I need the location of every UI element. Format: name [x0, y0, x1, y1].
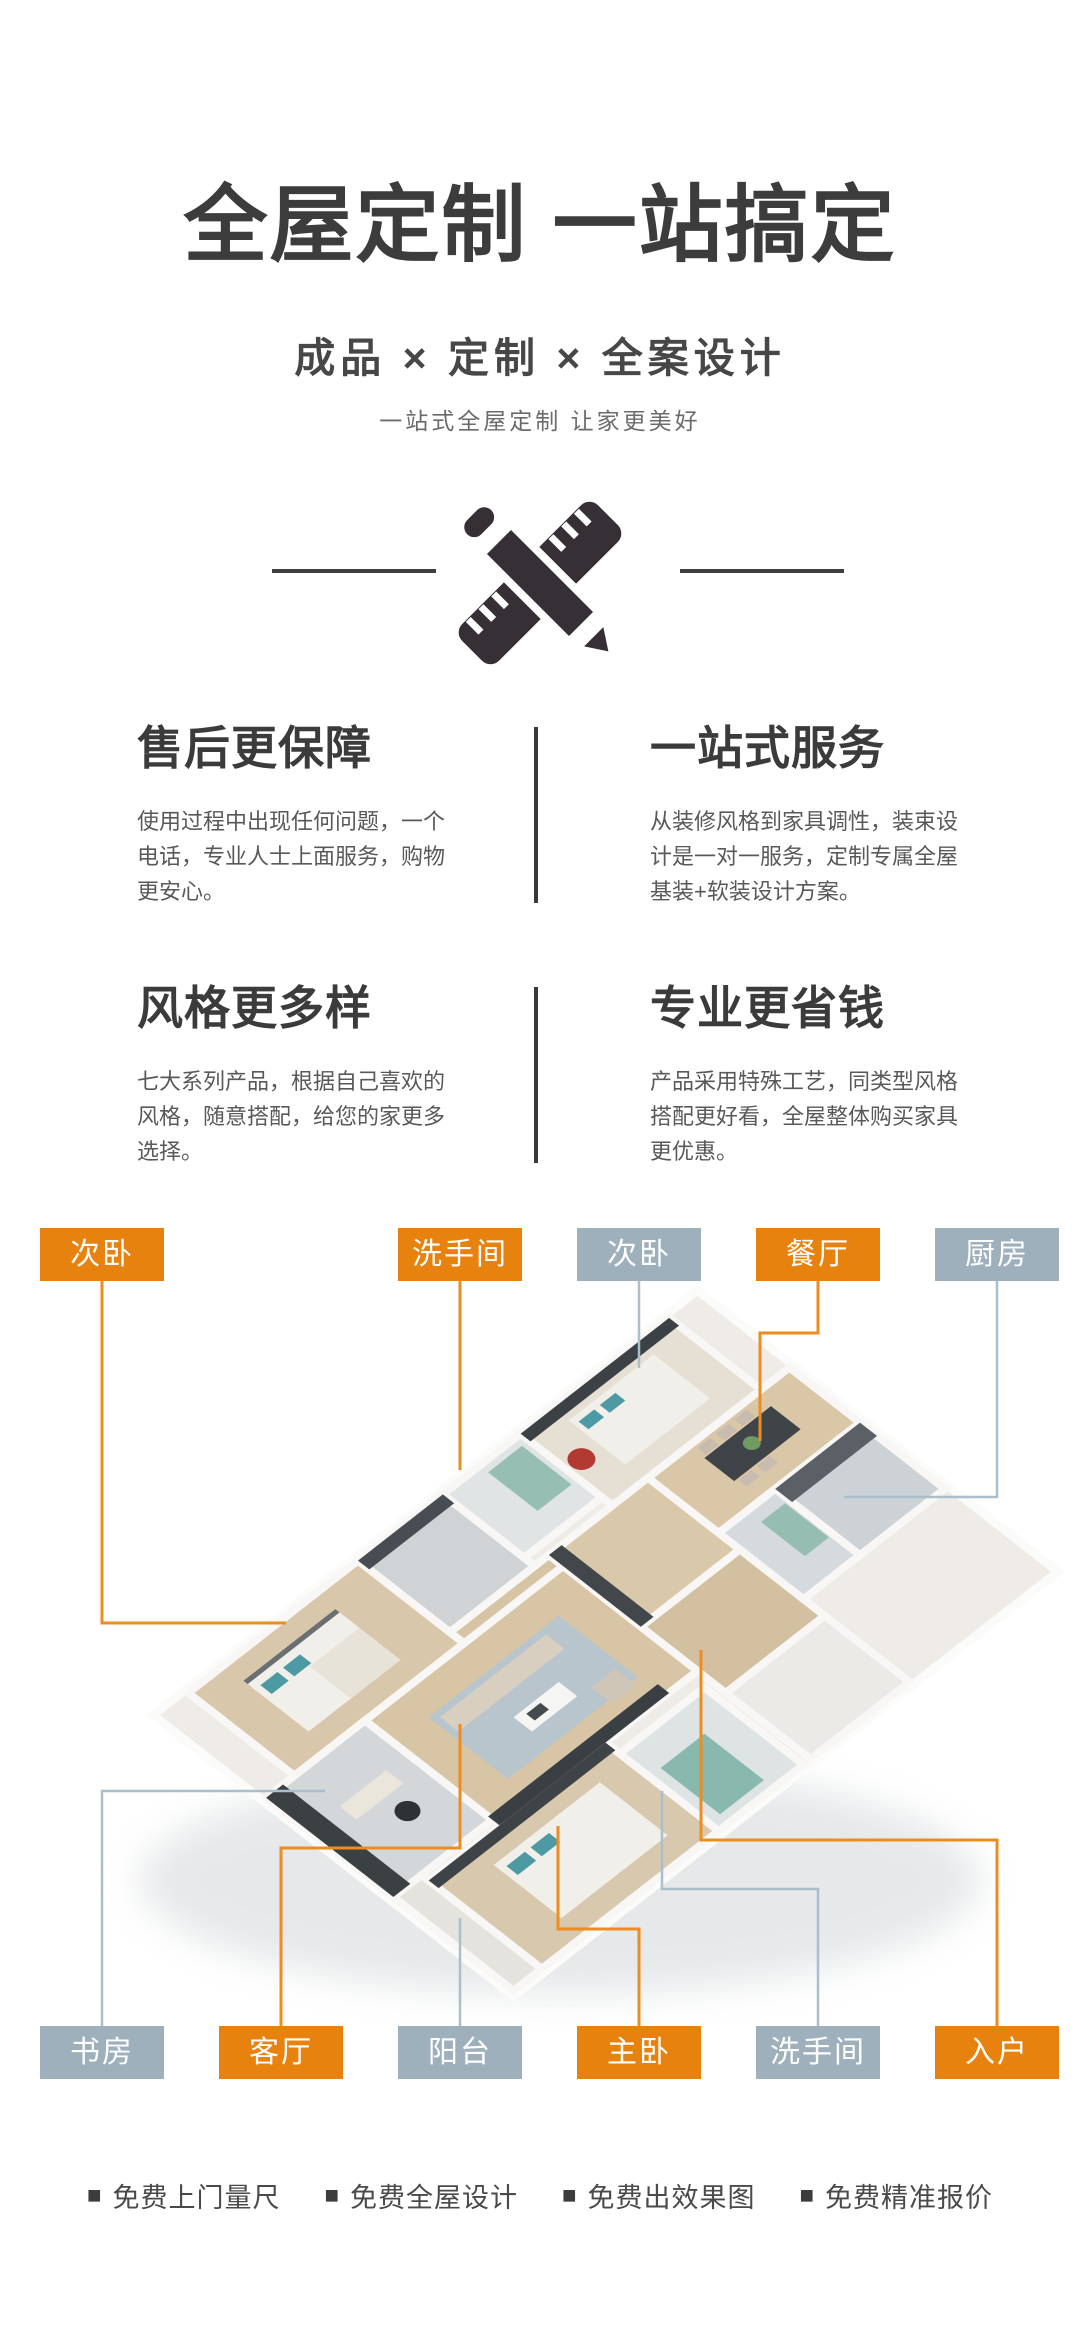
feature-savings: 专业更省钱 产品采用特殊工艺，同类型风格搭配更好看，全屋整体购买家具更优惠。	[650, 972, 972, 1169]
room-label-balcony: 阳台	[398, 2026, 522, 2079]
room-label-master: 主卧	[577, 2026, 701, 2079]
footer-item-label: 免费上门量尺	[113, 2176, 281, 2215]
bullet-square-icon: ■	[800, 2184, 816, 2208]
footer-item-label: 免费精准报价	[825, 2176, 993, 2215]
footer-item-label: 免费全屋设计	[350, 2176, 518, 2215]
bullet-square-icon: ■	[87, 2184, 103, 2208]
feature-styles: 风格更多样 七大系列产品，根据自己喜欢的风格，随意搭配，给您的家更多选择。	[137, 972, 463, 1169]
promo-page: 全屋定制 一站搞定 成品 × 定制 × 全案设计 一站式全屋定制 让家更美好	[0, 0, 1080, 2345]
footer-item-label: 免费出效果图	[588, 2176, 756, 2215]
feature-desc: 从装修风格到家具调性，装束设计是一对一服务，定制专属全屋基装+软装设计方案。	[650, 804, 966, 909]
feature-title: 风格更多样	[137, 972, 463, 1038]
footer-services: ■ 免费上门量尺 ■ 免费全屋设计 ■ 免费出效果图 ■ 免费精准报价	[0, 2176, 1080, 2215]
pencil-ruler-icon	[455, 478, 625, 688]
footer-item-measure: ■ 免费上门量尺	[87, 2176, 281, 2215]
room-label-entry: 入户	[935, 2026, 1059, 2079]
room-label-living: 客厅	[219, 2026, 343, 2079]
hero-subtitle: 成品 × 定制 × 全案设计	[0, 324, 1080, 384]
feature-title: 一站式服务	[650, 712, 966, 778]
footer-item-quote: ■ 免费精准报价	[800, 2176, 994, 2215]
feature-divider-top	[534, 727, 538, 903]
left-divider-line	[272, 569, 436, 573]
feature-desc: 产品采用特殊工艺，同类型风格搭配更好看，全屋整体购买家具更优惠。	[650, 1064, 972, 1169]
footer-item-render: ■ 免费出效果图	[562, 2176, 756, 2215]
page-title: 全屋定制 一站搞定	[0, 158, 1080, 279]
bullet-square-icon: ■	[325, 2184, 341, 2208]
feature-title: 专业更省钱	[650, 972, 972, 1038]
hero-tagline: 一站式全屋定制 让家更美好	[0, 402, 1080, 436]
room-label-bathroom-bot: 洗手间	[756, 2026, 880, 2079]
footer-item-design: ■ 免费全屋设计	[325, 2176, 519, 2215]
feature-divider-bottom	[534, 987, 538, 1163]
feature-onestop: 一站式服务 从装修风格到家具调性，装束设计是一对一服务，定制专属全屋基装+软装设…	[650, 712, 966, 909]
feature-aftersales: 售后更保障 使用过程中出现任何问题，一个电话，专业人士上面服务，购物更安心。	[137, 712, 463, 909]
floorplan-section: 次卧 洗手间 次卧 餐厅 厨房 书房 客厅 阳台 主卧 洗手间 入户	[0, 1190, 1080, 2100]
bullet-square-icon: ■	[562, 2184, 578, 2208]
room-label-study: 书房	[40, 2026, 164, 2079]
connector-bedroom-top	[102, 1280, 286, 1623]
floorplan-render	[0, 1190, 1080, 2100]
room-label-kitchen: 厨房	[935, 1228, 1059, 1281]
feature-desc: 使用过程中出现任何问题，一个电话，专业人士上面服务，购物更安心。	[137, 804, 463, 909]
room-label-bedroom-top: 次卧	[40, 1228, 164, 1281]
right-divider-line	[680, 569, 844, 573]
room-label-bedroom2-top: 次卧	[577, 1228, 701, 1281]
feature-desc: 七大系列产品，根据自己喜欢的风格，随意搭配，给您的家更多选择。	[137, 1064, 463, 1169]
room-label-dining: 餐厅	[756, 1228, 880, 1281]
room-label-bathroom-top: 洗手间	[398, 1228, 522, 1281]
feature-title: 售后更保障	[137, 712, 463, 778]
